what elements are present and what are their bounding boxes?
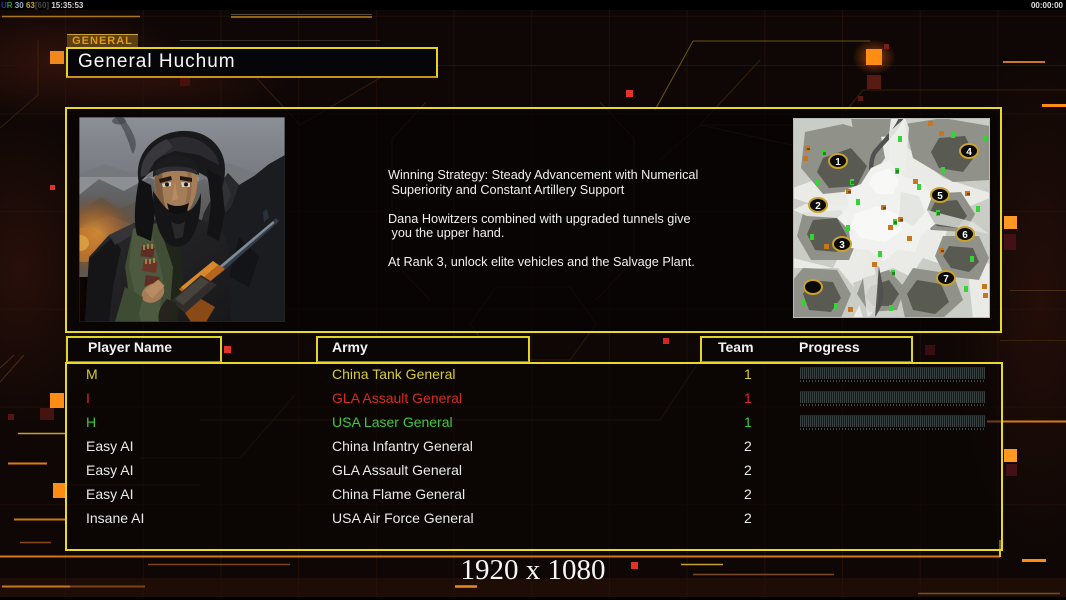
svg-text:4: 4: [966, 147, 972, 158]
svg-text:7: 7: [943, 274, 949, 285]
svg-text:5: 5: [937, 191, 943, 202]
svg-text:1: 1: [835, 157, 841, 168]
svg-text:2: 2: [815, 201, 821, 212]
svg-text:3: 3: [839, 240, 845, 251]
svg-text:6: 6: [962, 230, 968, 241]
